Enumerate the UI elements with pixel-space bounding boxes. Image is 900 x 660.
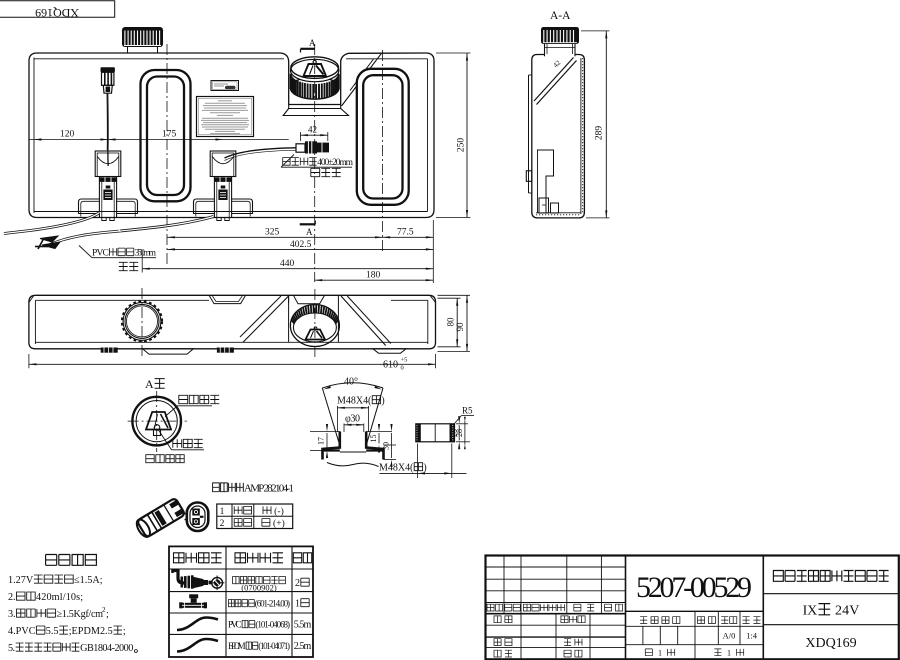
svg-text:1:4: 1:4 xyxy=(746,631,758,641)
svg-text:A-A: A-A xyxy=(550,10,571,22)
svg-text:5.: 5. xyxy=(8,643,15,654)
svg-text:610: 610 xyxy=(383,359,398,370)
svg-text:A/0: A/0 xyxy=(723,631,736,641)
svg-text:80: 80 xyxy=(446,317,456,327)
svg-text:175: 175 xyxy=(162,130,176,140)
svg-text:(-): (-) xyxy=(272,506,284,517)
svg-text:(+): (+) xyxy=(271,518,285,529)
svg-text:0: 0 xyxy=(401,365,404,372)
svg-text:PVC: PVC xyxy=(92,249,109,259)
svg-text:28: 28 xyxy=(455,429,464,437)
svg-text:289: 289 xyxy=(595,126,605,140)
svg-text:M48X4(: M48X4( xyxy=(379,463,414,474)
svg-text:77.5: 77.5 xyxy=(397,228,414,238)
svg-text:(601-214.00): (601-214.00) xyxy=(255,599,290,609)
svg-text:400±20mm: 400±20mm xyxy=(317,158,353,168)
svg-text:2: 2 xyxy=(220,519,225,529)
svg-text:440: 440 xyxy=(280,259,294,269)
svg-text:+5: +5 xyxy=(401,357,408,364)
svg-text:5.5m: 5.5m xyxy=(294,620,312,631)
svg-text:;EPDM2.5: ;EPDM2.5 xyxy=(69,626,113,637)
svg-text:5207-00529: 5207-00529 xyxy=(636,571,752,604)
svg-text:5.5: 5.5 xyxy=(46,626,59,637)
svg-text:A: A xyxy=(306,227,313,237)
svg-text:PVC: PVC xyxy=(228,620,242,630)
svg-text:420ml/10s;: 420ml/10s; xyxy=(36,592,83,603)
svg-text:(0700902): (0700902) xyxy=(241,583,277,593)
svg-text:≤1.5A;: ≤1.5A; xyxy=(74,575,103,586)
svg-text:90: 90 xyxy=(455,322,465,332)
svg-text:): ) xyxy=(423,463,426,474)
svg-text:250: 250 xyxy=(457,138,467,152)
svg-text:M48X4(: M48X4( xyxy=(337,396,372,407)
svg-text:XDQ169: XDQ169 xyxy=(805,636,856,651)
svg-text:≥1.5Kgf/cm: ≥1.5Kgf/cm xyxy=(57,609,104,620)
svg-text:AMP 282104-1: AMP 282104-1 xyxy=(244,483,294,495)
svg-text:24V: 24V xyxy=(831,604,859,619)
svg-text:): ) xyxy=(381,396,384,407)
svg-text:40°: 40° xyxy=(344,377,358,388)
svg-text:1.27V: 1.27V xyxy=(8,575,34,586)
svg-text:(101-04071): (101-04071) xyxy=(258,641,290,651)
svg-text:1: 1 xyxy=(722,648,736,658)
svg-text:325: 325 xyxy=(265,228,279,238)
svg-text:A: A xyxy=(145,377,154,391)
svg-text:XDQ169: XDQ169 xyxy=(35,6,79,20)
svg-text:350mm: 350mm xyxy=(135,249,157,259)
svg-text:R5: R5 xyxy=(462,406,473,416)
svg-text:A: A xyxy=(309,38,316,48)
svg-text:1: 1 xyxy=(295,599,300,610)
svg-text:1: 1 xyxy=(653,648,667,658)
svg-text:4.PVC: 4.PVC xyxy=(8,626,36,637)
svg-text:EPDM: EPDM xyxy=(228,641,246,651)
svg-text:30: 30 xyxy=(382,442,391,450)
svg-text:(101-04068): (101-04068) xyxy=(255,620,290,630)
svg-text:17: 17 xyxy=(317,437,326,445)
svg-text:;: ; xyxy=(106,609,109,620)
svg-text:;: ; xyxy=(123,626,126,637)
svg-text:GB1804-2000: GB1804-2000 xyxy=(80,643,133,654)
svg-text:120: 120 xyxy=(60,130,74,140)
svg-text:42: 42 xyxy=(308,125,317,135)
svg-text:2: 2 xyxy=(295,578,300,589)
svg-text:φ30: φ30 xyxy=(345,414,360,425)
svg-text:2.: 2. xyxy=(8,592,16,603)
svg-text:3.: 3. xyxy=(8,609,16,620)
svg-text:15: 15 xyxy=(369,435,378,443)
svg-text:IX: IX xyxy=(803,604,818,619)
svg-text:1: 1 xyxy=(220,507,225,517)
svg-text:180: 180 xyxy=(366,271,380,281)
svg-text:402.5: 402.5 xyxy=(290,240,312,250)
svg-text:2.5m: 2.5m xyxy=(294,641,312,652)
